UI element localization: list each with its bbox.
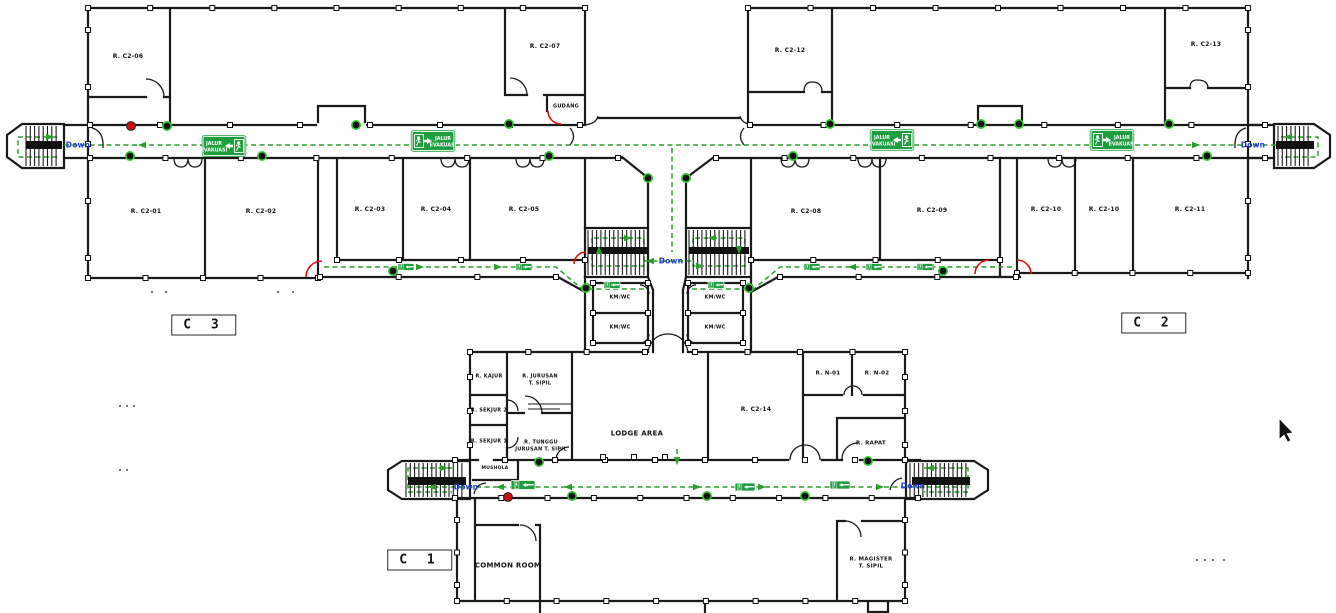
room-label: R. C2-08: [791, 208, 822, 216]
column-marker: [745, 350, 750, 355]
column-marker: [749, 258, 754, 263]
down-label: Down: [1241, 141, 1265, 150]
stair-landing-bar: [1276, 141, 1314, 149]
column-marker: [741, 311, 746, 316]
print-dot: [277, 291, 279, 293]
floorplan-linework: JALUREVAKUASIJALUREVAKUASIJALUREVAKUASIJ…: [0, 0, 1336, 613]
evac-sign-small: [511, 481, 535, 490]
room-label: R. C2-03: [355, 206, 386, 214]
lamp-dot: [568, 492, 576, 500]
column-marker: [88, 123, 93, 128]
lamp-dot: [1203, 152, 1211, 160]
lamp-dot: [126, 152, 134, 160]
room-label: R. TUNGGU JURUSAN T. SIPIL: [515, 439, 567, 453]
column-marker: [1014, 275, 1019, 280]
lamp-dot: [1165, 120, 1173, 128]
walls-block-c2: [748, 8, 1270, 292]
column-marker: [933, 6, 938, 11]
room-label: R. JURUSAN T. SIPIL: [522, 373, 558, 387]
room-label: R. C2-09: [917, 207, 948, 215]
lamp-dot: [644, 174, 652, 182]
room-label: MUSHOLA: [481, 466, 508, 472]
column-marker: [1058, 6, 1063, 11]
room-label: R. C2-13: [1191, 41, 1222, 49]
column-marker: [521, 258, 526, 263]
column-marker: [455, 583, 460, 588]
column-marker: [903, 350, 908, 355]
column-marker: [903, 443, 908, 448]
column-marker: [526, 350, 531, 355]
evac-sign-small: [398, 264, 414, 271]
column-marker: [210, 6, 215, 11]
column-marker: [1246, 256, 1251, 261]
evac-sign: JALUREVAKUASI: [411, 131, 456, 152]
room-label: KM/WC: [609, 295, 630, 302]
column-marker: [903, 458, 908, 463]
lamp-dot: [258, 152, 266, 160]
route-arrow: [496, 484, 504, 490]
column-marker: [803, 599, 808, 604]
column-marker: [686, 281, 691, 286]
column-marker: [553, 458, 558, 463]
column-marker: [693, 350, 698, 355]
column-marker: [397, 258, 402, 263]
column-marker: [746, 6, 751, 11]
column-marker: [903, 409, 908, 414]
column-marker: [468, 375, 473, 380]
column-marker: [808, 6, 813, 11]
evac-sign-small: [604, 282, 620, 289]
column-marker: [1246, 199, 1251, 204]
down-label: Down: [66, 141, 90, 150]
column-marker: [298, 123, 303, 128]
column-marker: [748, 123, 753, 128]
column-marker: [158, 123, 163, 128]
column-marker: [856, 275, 861, 280]
block-label-c2: C 2: [1121, 313, 1186, 334]
column-marker: [853, 458, 858, 463]
route-arrow: [416, 264, 424, 270]
lamp-dot: [977, 120, 985, 128]
column-marker: [148, 6, 153, 11]
column-marker: [1130, 271, 1135, 276]
route-arrow: [440, 465, 448, 471]
lamp-dot: [389, 267, 397, 275]
room-label: R. C2-07: [530, 43, 561, 51]
column-marker: [916, 496, 921, 501]
column-marker: [811, 258, 816, 263]
column-marker: [703, 599, 708, 604]
column-marker: [851, 156, 856, 161]
room-label: KM/WC: [704, 325, 725, 332]
column-marker: [873, 258, 878, 263]
column-marker: [903, 518, 908, 523]
column-marker: [903, 550, 908, 555]
column-marker: [663, 455, 668, 460]
room-label: GUDANG: [553, 104, 579, 111]
print-dot: [126, 469, 128, 471]
column-marker: [903, 375, 908, 380]
column-marker: [686, 311, 691, 316]
evac-sign-text-line1: JALUR: [873, 135, 890, 141]
column-marker: [272, 6, 277, 11]
column-marker: [803, 458, 808, 463]
route-arrow: [708, 235, 716, 241]
lamp-dot: [826, 120, 834, 128]
evac-sign-small: [917, 264, 933, 271]
column-marker: [643, 350, 648, 355]
column-marker: [919, 156, 924, 161]
lamp-dot: [939, 267, 947, 275]
column-marker: [468, 350, 473, 355]
column-marker: [632, 455, 637, 460]
column-marker: [201, 276, 206, 281]
column-marker: [86, 85, 91, 90]
room-label: R. MAGISTER T. SIPIL: [849, 557, 892, 572]
room-label: COMMON ROOM: [475, 561, 541, 570]
column-marker: [753, 599, 758, 604]
column-marker: [1194, 156, 1199, 161]
route-arrow: [494, 264, 502, 270]
column-marker: [850, 350, 855, 355]
room-label: R. N-01: [816, 370, 841, 377]
column-marker: [499, 496, 504, 501]
column-marker: [334, 6, 339, 11]
column-marker: [753, 458, 758, 463]
column-marker: [591, 341, 596, 346]
down-label: Down: [659, 257, 683, 266]
column-marker: [730, 496, 735, 501]
column-marker: [988, 156, 993, 161]
evac-sign: JALUREVAKUASI: [201, 136, 246, 157]
stair-treads: [26, 126, 1314, 497]
column-marker: [86, 6, 91, 11]
route-arrow: [693, 484, 701, 490]
column-marker: [554, 599, 559, 604]
evac-sign: JALUREVAKUASI: [1090, 130, 1135, 151]
lamp-dot: [505, 120, 513, 128]
furniture-lines: [528, 404, 572, 409]
floor-plan-canvas: JALUREVAKUASIJALUREVAKUASIJALUREVAKUASIJ…: [0, 0, 1336, 613]
column-marker: [86, 256, 91, 261]
column-markers: [86, 6, 1268, 604]
room-label: R. C2-06: [113, 53, 144, 61]
lamp-dot: [1015, 120, 1023, 128]
column-marker: [520, 6, 525, 11]
print-dot: [1223, 559, 1225, 561]
evac-sign-small: [708, 282, 724, 289]
column-marker: [998, 258, 1003, 263]
column-marker: [1125, 156, 1130, 161]
column-marker: [1183, 6, 1188, 11]
print-dot: [126, 405, 128, 407]
column-marker: [646, 311, 651, 316]
column-marker: [823, 496, 828, 501]
column-marker: [903, 583, 908, 588]
evac-sign-text-line2: EVAKUASI: [430, 143, 457, 149]
room-label: R. RAPAT: [856, 440, 886, 447]
room-label: R. C2-10: [1089, 206, 1120, 214]
column-marker: [591, 496, 596, 501]
room-label: R. C2-14: [741, 406, 772, 414]
column-marker: [798, 350, 803, 355]
walls: [7, 8, 1330, 612]
column-marker: [638, 496, 643, 501]
column-marker: [86, 276, 91, 281]
column-marker: [554, 275, 559, 280]
print-dot: [119, 469, 121, 471]
print-dot: [133, 405, 135, 407]
column-marker: [684, 496, 689, 501]
route-arrow: [876, 484, 884, 490]
column-marker: [654, 599, 659, 604]
column-marker: [777, 496, 782, 501]
room-label: R. N-02: [865, 370, 890, 377]
column-marker: [396, 6, 401, 11]
room-label: KM/WC: [704, 295, 725, 302]
evac-sign-small: [804, 264, 820, 271]
column-marker: [1263, 156, 1268, 161]
column-marker: [1246, 85, 1251, 90]
evac-sign-small: [735, 483, 755, 491]
column-marker: [455, 550, 460, 555]
column-marker: [686, 341, 691, 346]
column-marker: [591, 311, 596, 316]
lamp-dot: [582, 284, 590, 292]
column-marker: [1246, 28, 1251, 33]
corridor-lamps: [126, 120, 1211, 502]
stair-landing-bar: [26, 141, 62, 149]
evac-sign-small: [866, 264, 882, 271]
route-arrows: [46, 134, 1292, 490]
lamp-dot: [801, 492, 809, 500]
column-marker: [465, 156, 470, 161]
column-marker: [228, 123, 233, 128]
room-label: R. C2-11: [1175, 206, 1206, 214]
route-arrow: [564, 484, 572, 490]
column-marker: [604, 599, 609, 604]
column-marker: [903, 599, 908, 604]
column-marker: [1057, 156, 1062, 161]
column-marker: [389, 156, 394, 161]
column-marker: [1263, 123, 1268, 128]
column-marker: [458, 6, 463, 11]
lamp-dot: [163, 122, 171, 130]
print-dot: [1196, 559, 1198, 561]
room-label: LODGE AREA: [611, 429, 663, 438]
print-dot: [165, 291, 167, 293]
column-marker: [88, 156, 93, 161]
column-marker: [968, 123, 973, 128]
lamp-dot: [352, 121, 360, 129]
room-label: R. C2-01: [131, 208, 162, 216]
down-label: Down: [901, 482, 925, 491]
column-marker: [778, 275, 783, 280]
door-arcs-black: [92, 78, 1246, 541]
print-artifacts: [119, 291, 1225, 561]
column-marker: [578, 123, 583, 128]
lamp-dot: [864, 457, 872, 465]
column-marker: [455, 599, 460, 604]
column-marker: [459, 258, 464, 263]
column-marker: [314, 156, 319, 161]
route-arrow: [138, 142, 146, 148]
route-arrow: [1284, 134, 1292, 140]
lamp-dot: [745, 284, 753, 292]
print-dot: [1212, 559, 1214, 561]
block-label-c3: C 3: [171, 315, 236, 336]
column-marker: [1246, 6, 1251, 11]
column-marker: [853, 599, 858, 604]
column-marker: [703, 458, 708, 463]
column-marker: [1188, 271, 1193, 276]
print-dot: [1204, 559, 1206, 561]
column-marker: [86, 199, 91, 204]
block-label-c1: C 1: [387, 550, 452, 571]
column-marker: [318, 275, 323, 280]
lamp-dot: [703, 492, 711, 500]
column-marker: [335, 258, 340, 263]
mouse-cursor[interactable]: [1279, 418, 1294, 443]
down-label: Down: [454, 483, 478, 492]
room-label: R. C2-10: [1031, 206, 1062, 214]
column-marker: [782, 156, 787, 161]
column-marker: [368, 123, 373, 128]
room-label: R. SEKJUR 2: [471, 408, 507, 415]
column-marker: [996, 6, 1001, 11]
lamp-dot: [789, 152, 797, 160]
column-marker: [1115, 123, 1120, 128]
column-marker: [741, 341, 746, 346]
column-marker: [453, 458, 458, 463]
column-marker: [455, 518, 460, 523]
column-marker: [86, 28, 91, 33]
evac-sign-text-line2: EVAKUASI: [201, 148, 228, 154]
lamp-dot: [545, 152, 553, 160]
route-arrow: [758, 484, 766, 490]
print-dot: [292, 291, 294, 293]
route-arrow: [1192, 142, 1200, 148]
column-marker: [1072, 271, 1077, 276]
column-marker: [143, 276, 148, 281]
column-marker: [591, 281, 596, 286]
route-arrow: [696, 263, 704, 269]
column-marker: [616, 156, 621, 161]
room-label: R. C2-12: [775, 47, 806, 55]
column-marker: [869, 496, 874, 501]
door-arcs: [92, 78, 1246, 541]
room-label: R. C2-02: [246, 208, 277, 216]
column-marker: [396, 275, 401, 280]
column-marker: [1246, 271, 1251, 276]
column-marker: [1042, 123, 1047, 128]
evac-sign-small: [516, 264, 532, 271]
route-arrow: [46, 134, 54, 140]
room-label: R. KAJUR: [475, 374, 502, 381]
column-marker: [438, 123, 443, 128]
column-marker: [504, 599, 509, 604]
room-label: R. SEKJUR 1: [471, 439, 507, 446]
lamp-dot: [535, 458, 543, 466]
print-dot: [119, 405, 121, 407]
lamp-dot: [682, 174, 690, 182]
column-marker: [583, 258, 588, 263]
route-arrow: [848, 264, 856, 270]
evac-sign-text-line1: JALUR: [434, 136, 451, 142]
column-marker: [646, 281, 651, 286]
column-marker: [895, 123, 900, 128]
column-marker: [653, 458, 658, 463]
column-marker: [453, 496, 458, 501]
column-marker: [258, 276, 263, 281]
evac-sign-text-line2: EVAKUASI: [869, 142, 896, 148]
column-marker: [475, 275, 480, 280]
column-marker: [935, 258, 940, 263]
column-marker: [1121, 6, 1126, 11]
column-marker: [741, 281, 746, 286]
column-marker: [1189, 123, 1194, 128]
room-label: R. C2-05: [509, 206, 540, 214]
room-label: KM/WC: [609, 325, 630, 332]
column-marker: [714, 156, 719, 161]
column-marker: [583, 6, 588, 11]
evac-sign-text-line1: JALUR: [205, 141, 222, 147]
column-marker: [503, 458, 508, 463]
column-marker: [163, 156, 168, 161]
column-marker: [646, 341, 651, 346]
column-marker: [871, 6, 876, 11]
evac-sign-small: [830, 481, 850, 489]
column-marker: [584, 350, 589, 355]
evac-sign-text-line1: JALUR: [1113, 135, 1130, 141]
column-marker: [545, 496, 550, 501]
room-label: R. C2-04: [421, 206, 452, 214]
column-marker: [601, 455, 606, 460]
alarm-dot: [504, 493, 513, 502]
alarm-dot: [127, 122, 136, 131]
print-dot: [151, 291, 153, 293]
column-marker: [935, 275, 940, 280]
evacuation-signs: JALUREVAKUASIJALUREVAKUASIJALUREVAKUASIJ…: [201, 130, 1136, 491]
evac-sign-text-line2: EVAKUASI: [1109, 142, 1136, 148]
evac-sign: JALUREVAKUASI: [869, 130, 914, 151]
